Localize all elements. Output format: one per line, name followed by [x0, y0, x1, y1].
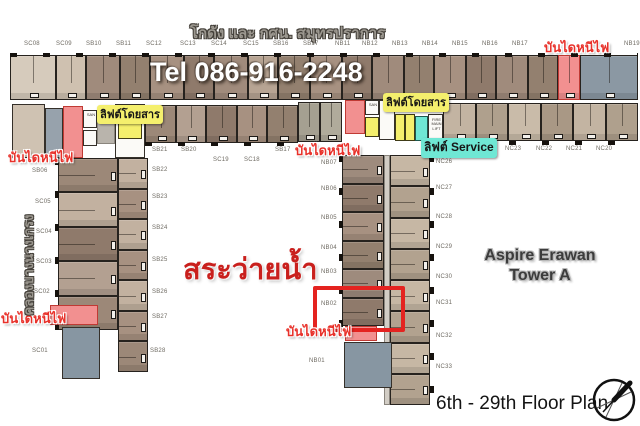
unit-block: [606, 103, 638, 141]
tower-name-line1: Aspire Erawan: [468, 246, 612, 266]
san-room-label: SAN: [85, 113, 97, 117]
unit-block: [58, 192, 118, 226]
unit-block: [118, 189, 148, 220]
unit-block: [466, 55, 496, 100]
fire-escape-label: บันไดหนีไฟ: [544, 37, 609, 58]
unit-block: [496, 55, 528, 100]
unit-block: [10, 55, 56, 100]
service-lift-label: ลิฟต์ Service: [421, 138, 497, 158]
passenger-lift-block: [405, 114, 415, 141]
unit-label: SC09: [56, 41, 72, 47]
fire-escape-label: บันไดหนีไฟ: [286, 321, 351, 342]
building-row: [145, 105, 298, 143]
site-caption: โกดัง และ กศน. สมุทรปราการ: [190, 21, 385, 45]
unit-label: NC31: [436, 300, 452, 306]
unit-label: NC27: [436, 185, 452, 191]
unit-block: [342, 212, 384, 241]
unit-block: [390, 218, 430, 249]
passenger-lift-label: ลิฟต์โดยสาร: [383, 93, 449, 112]
unit-label: NC20: [596, 146, 612, 152]
unit-label: SB06: [32, 168, 47, 174]
unit-label: NB17: [512, 41, 528, 47]
phone-number: Tel 086-916-2248: [150, 57, 363, 88]
tower-name: Aspire Erawan Tower A: [468, 246, 612, 286]
column-ticks: [430, 155, 434, 405]
unit-block: [541, 103, 573, 141]
unit-block: [62, 327, 100, 379]
canal-label: คลองบางนางเกรง: [18, 190, 36, 340]
unit-block: [320, 102, 342, 142]
unit-label: SC05: [35, 199, 51, 205]
unit-block: [390, 343, 430, 374]
unit-block: [267, 105, 298, 143]
unit-label: NC23: [505, 146, 521, 152]
unit-label: SB26: [152, 289, 167, 295]
building-row: [443, 103, 638, 141]
unit-block: [342, 241, 384, 270]
unit-label: SB25: [152, 257, 167, 263]
unit-label: NC28: [436, 214, 452, 220]
passenger-lift-block: [395, 114, 405, 141]
unit-label: SC04: [36, 229, 52, 235]
unit-block: [298, 102, 320, 142]
unit-block: [118, 280, 148, 311]
unit-label: SB17: [275, 147, 290, 153]
unit-label: NC32: [436, 333, 452, 339]
unit-label: SB22: [152, 167, 167, 173]
unit-block: [118, 250, 148, 281]
fire-main-lift-room: FIRE MAIN LIFT: [428, 114, 443, 141]
unit-label: SB28: [150, 348, 165, 354]
unit-block: [344, 342, 392, 388]
unit-block: [86, 55, 120, 100]
utility-room: [83, 130, 97, 146]
unit-label: NB04: [321, 245, 337, 251]
building-left-wing-east: [118, 158, 148, 372]
san-room-label: SAN: [367, 103, 379, 107]
unit-block: [342, 184, 384, 213]
unit-label: NB14: [422, 41, 438, 47]
san-room: SAN: [365, 100, 379, 115]
unit-label: NB15: [452, 41, 468, 47]
building-row: [298, 102, 342, 142]
unit-label: SC18: [244, 157, 260, 163]
column-ticks: [145, 142, 298, 146]
unit-label: NB06: [321, 186, 337, 192]
fire-main-lift-label: FIRE MAIN LIFT: [430, 118, 443, 131]
pool-label: สระว่ายน้ำ: [183, 246, 318, 292]
unit-label: NC26: [436, 159, 452, 165]
unit-label: SC01: [32, 348, 48, 354]
unit-block: [176, 105, 206, 143]
unit-label: SB20: [181, 147, 196, 153]
unit-block: [118, 341, 148, 372]
unit-block: [118, 311, 148, 342]
unit-label: NB02: [321, 301, 337, 307]
unit-label: SC19: [213, 157, 229, 163]
unit-label: SB27: [152, 314, 167, 320]
unit-label: NC30: [436, 274, 452, 280]
unit-block: [206, 105, 237, 143]
unit-label: NC33: [436, 364, 452, 370]
unit-label: SB23: [152, 194, 167, 200]
floor-plan: โกดัง และ กศน. สมุทรปราการ Tel 086-916-2…: [0, 0, 640, 426]
fire-stair-block: [558, 55, 580, 100]
tower-name-line2: Tower A: [468, 266, 612, 286]
unit-block: [118, 158, 148, 189]
unit-label: NB03: [321, 269, 337, 275]
unit-label: SB10: [86, 41, 101, 47]
unit-block: [58, 227, 118, 261]
unit-block: [56, 55, 86, 100]
unit-label: NB19: [624, 41, 640, 47]
unit-label: NB16: [482, 41, 498, 47]
unit-label: SC02: [34, 289, 50, 295]
unit-block: [58, 261, 118, 295]
san-room: SAN: [83, 110, 97, 128]
unit-label: SC12: [146, 41, 162, 47]
unit-label: SC03: [36, 259, 52, 265]
compass-icon: [591, 377, 637, 423]
fire-stair-block: [345, 100, 365, 134]
unit-block: [118, 219, 148, 250]
unit-block: [237, 105, 267, 143]
unit-label: NC29: [436, 244, 452, 250]
unit-label: SB11: [116, 41, 131, 47]
unit-label: NB01: [309, 358, 325, 364]
unit-label: SC08: [24, 41, 40, 47]
unit-block: [390, 186, 430, 217]
unit-block: [580, 55, 638, 100]
unit-block: [120, 55, 150, 100]
unit-block: [476, 103, 508, 141]
unit-label: SB24: [152, 225, 167, 231]
floor-range-label: 6th - 29th Floor Plan: [436, 393, 608, 415]
unit-label: NB05: [321, 215, 337, 221]
unit-block: [390, 374, 430, 405]
unit-label: NC22: [536, 146, 552, 152]
fire-escape-label: บันไดหนีไฟ: [295, 140, 360, 161]
fire-escape-label: บันไดหนีไฟ: [8, 147, 73, 168]
unit-label: NB13: [392, 41, 408, 47]
unit-block: [390, 249, 430, 280]
unit-block: [390, 155, 430, 186]
unit-block: [573, 103, 606, 141]
building-center-wing-east: [390, 155, 430, 405]
passenger-lift-block: [118, 122, 142, 139]
unit-label: SB21: [152, 147, 167, 153]
unit-block: [528, 55, 558, 100]
unit-block: [508, 103, 541, 141]
unit-label: NC21: [566, 146, 582, 152]
passenger-lift-block: [365, 117, 379, 137]
passenger-lift-label: ลิฟต์โดยสาร: [97, 105, 163, 124]
